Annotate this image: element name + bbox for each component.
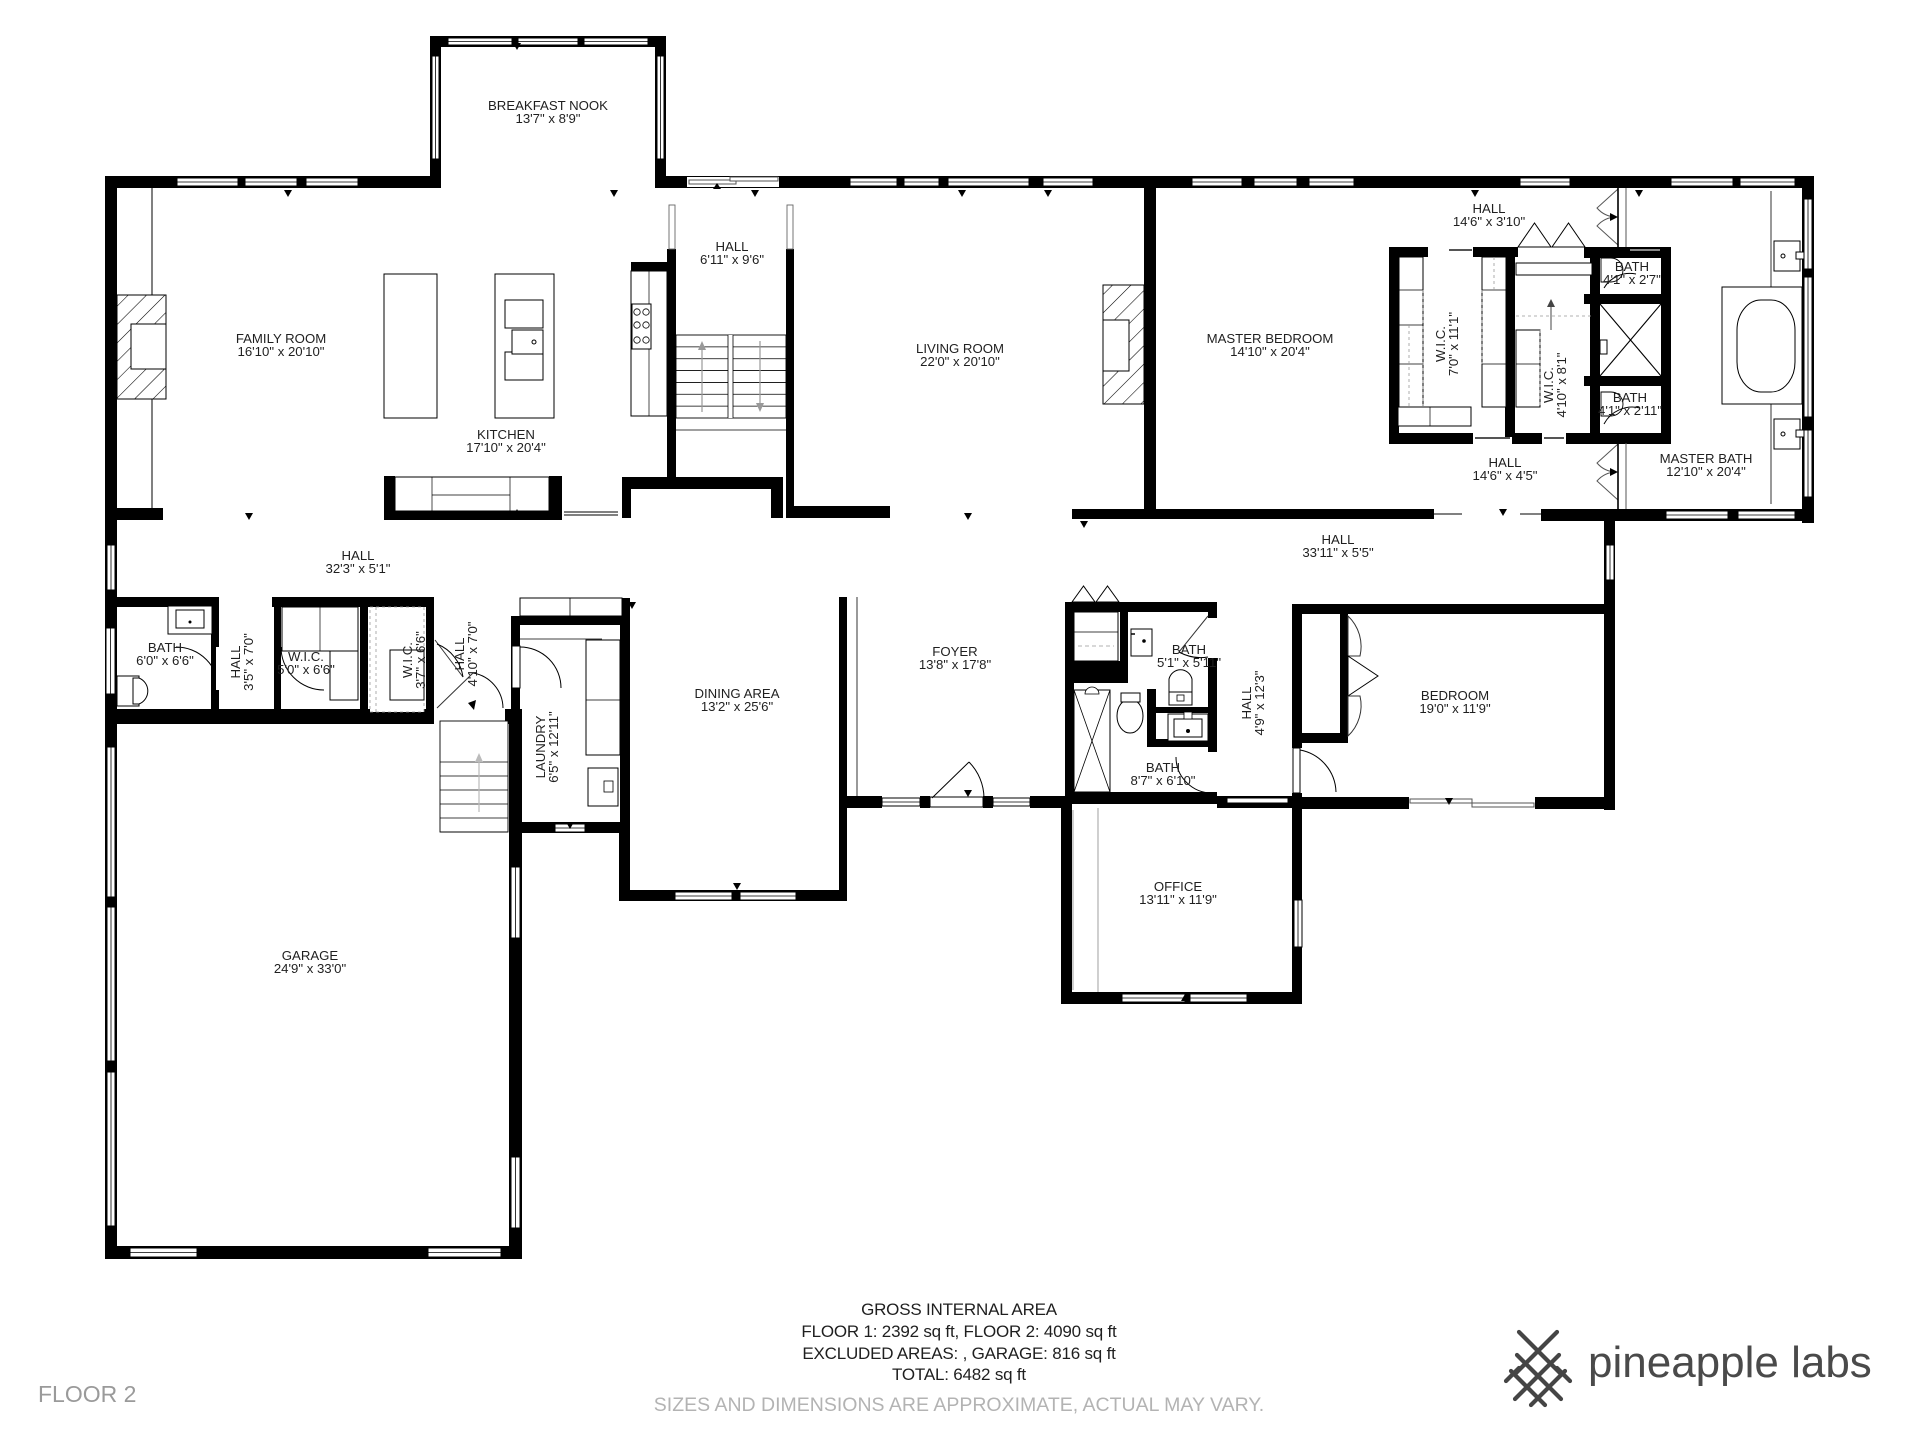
svg-text:32'3" x 5'1": 32'3" x 5'1": [326, 561, 391, 576]
svg-text:6'5" x 12'11": 6'5" x 12'11": [546, 711, 561, 783]
svg-text:13'11" x 11'9": 13'11" x 11'9": [1139, 892, 1217, 907]
svg-text:4'10" x 8'1": 4'10" x 8'1": [1554, 352, 1569, 417]
svg-text:3'5" x 7'0": 3'5" x 7'0": [241, 633, 256, 691]
svg-text:4'1" x 2'7": 4'1" x 2'7": [1603, 272, 1661, 287]
svg-text:6'0" x 6'6": 6'0" x 6'6": [136, 653, 194, 668]
svg-text:22'0" x 20'10": 22'0" x 20'10": [920, 354, 1000, 369]
svg-text:13'7" x 8'9": 13'7" x 8'9": [516, 111, 581, 126]
svg-text:14'6" x 4'5": 14'6" x 4'5": [1473, 468, 1538, 483]
svg-text:24'9" x 33'0": 24'9" x 33'0": [274, 961, 347, 976]
svg-text:FLOOR 1: 2392 sq ft, FLOOR 2:: FLOOR 1: 2392 sq ft, FLOOR 2: 4090 sq ft: [801, 1322, 1117, 1341]
svg-text:4'1" x 2'11": 4'1" x 2'11": [1598, 403, 1662, 418]
svg-text:12'10" x 20'4": 12'10" x 20'4": [1666, 464, 1746, 479]
svg-text:pineapple labs: pineapple labs: [1588, 1338, 1872, 1387]
svg-text:14'10" x 20'4": 14'10" x 20'4": [1230, 344, 1310, 359]
svg-text:17'10" x 20'4": 17'10" x 20'4": [466, 440, 546, 455]
svg-text:14'6" x 3'10": 14'6" x 3'10": [1453, 214, 1526, 229]
svg-text:13'8" x 17'8": 13'8" x 17'8": [919, 657, 992, 672]
svg-text:SIZES AND DIMENSIONS ARE APPRO: SIZES AND DIMENSIONS ARE APPROXIMATE, AC…: [654, 1394, 1264, 1416]
svg-text:3'7" x 6'6": 3'7" x 6'6": [413, 631, 428, 689]
svg-text:19'0" x 11'9": 19'0" x 11'9": [1419, 701, 1491, 716]
svg-text:4'9" x 12'3": 4'9" x 12'3": [1252, 670, 1267, 735]
svg-text:TOTAL: 6482 sq ft: TOTAL: 6482 sq ft: [892, 1365, 1026, 1384]
svg-text:5'1" x 5'11": 5'1" x 5'11": [1157, 655, 1221, 670]
svg-text:GROSS INTERNAL AREA: GROSS INTERNAL AREA: [861, 1300, 1058, 1319]
svg-text:13'2" x 25'6": 13'2" x 25'6": [701, 699, 774, 714]
svg-text:6'11" x 9'6": 6'11" x 9'6": [700, 252, 764, 267]
svg-text:FLOOR 2: FLOOR 2: [38, 1381, 136, 1407]
svg-text:7'0" x 11'1": 7'0" x 11'1": [1446, 312, 1461, 376]
svg-text:5'0" x 6'6": 5'0" x 6'6": [277, 662, 335, 677]
svg-text:16'10" x 20'10": 16'10" x 20'10": [238, 344, 325, 359]
svg-text:8'7" x 6'10": 8'7" x 6'10": [1131, 773, 1196, 788]
svg-text:EXCLUDED AREAS: , GARAGE: 816: EXCLUDED AREAS: , GARAGE: 816 sq ft: [802, 1344, 1116, 1363]
svg-text:33'11" x 5'5": 33'11" x 5'5": [1302, 545, 1374, 560]
svg-text:4'10" x 7'0": 4'10" x 7'0": [465, 621, 480, 686]
